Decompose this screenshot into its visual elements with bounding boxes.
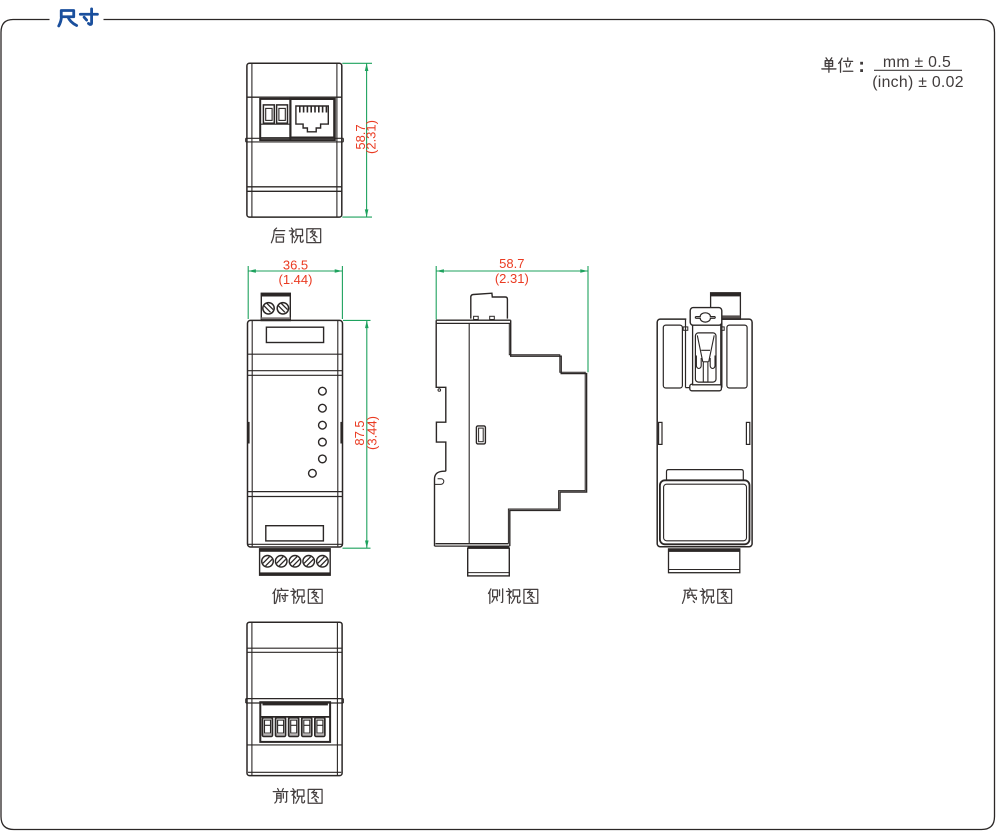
svg-text:(2.31): (2.31) (495, 271, 529, 286)
svg-text:(inch) ± 0.02: (inch) ± 0.02 (872, 74, 964, 91)
svg-text:36.5: 36.5 (283, 257, 308, 272)
svg-text:58.7: 58.7 (499, 256, 524, 271)
svg-text:mm ± 0.5: mm ± 0.5 (883, 54, 951, 71)
svg-text:(1.44): (1.44) (279, 272, 313, 287)
svg-text:(2.31): (2.31) (364, 120, 379, 154)
svg-text:(3.44): (3.44) (364, 416, 379, 450)
